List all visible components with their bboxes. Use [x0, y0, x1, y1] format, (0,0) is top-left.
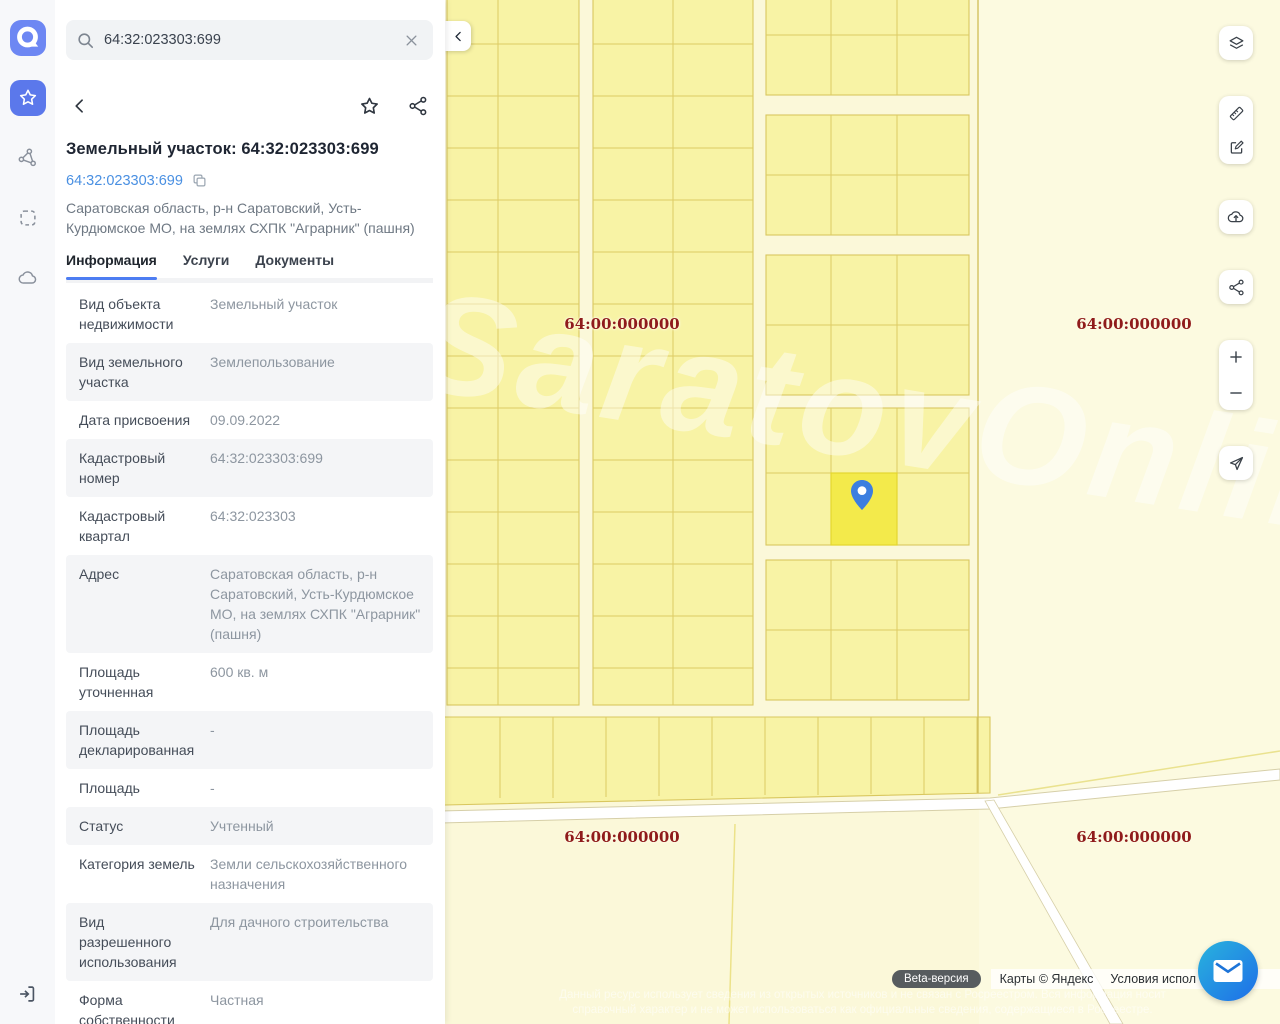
copy-icon: [191, 172, 208, 189]
beta-badge: Beta-версия: [892, 970, 981, 988]
tab-information[interactable]: Информация: [66, 252, 157, 278]
map-canvas[interactable]: SaratovOnline 64:00:00000064:00:00000064…: [445, 0, 1280, 1024]
row-label: Адрес: [79, 564, 210, 644]
cadastral-quarter-label: 64:00:000000: [564, 315, 679, 333]
envelope-icon: [1212, 957, 1244, 985]
row-value: Для дачного строительства: [210, 912, 423, 972]
row-label: Кадастровый номер: [79, 448, 210, 488]
info-table: Вид объекта недвижимости Земельный участ…: [66, 285, 433, 1024]
table-row: Адрес Саратовская область, р-н Саратовск…: [66, 555, 433, 653]
tab-documents[interactable]: Документы: [255, 252, 334, 278]
cadastral-quarter-label: 64:00:000000: [1076, 828, 1191, 846]
map-share-button[interactable]: [1219, 270, 1253, 304]
row-value: 600 кв. м: [210, 662, 423, 702]
row-label: Кадастровый квартал: [79, 506, 210, 546]
zoom-controls: [1219, 340, 1253, 410]
table-row: Кадастровый номер 64:32:023303:699: [66, 439, 433, 497]
cadastral-quarter-label: 64:00:000000: [564, 828, 679, 846]
row-label: Категория земель: [79, 854, 210, 894]
row-label: Вид объекта недвижимости: [79, 294, 210, 334]
table-row: Площадь -: [66, 769, 433, 807]
cadastral-quarter-label: 64:00:000000: [1076, 315, 1191, 333]
minus-icon: [1227, 384, 1245, 402]
share-icon: [1227, 278, 1246, 297]
panel-header: [66, 88, 433, 124]
row-label: Вид разрешенного использования: [79, 912, 210, 972]
polygon-nodes-icon: [17, 147, 39, 169]
tabs: Информация Услуги Документы: [66, 252, 433, 283]
close-icon: [404, 33, 419, 48]
table-row: Форма собственности Частная: [66, 981, 433, 1024]
row-value: Саратовская область, р-н Саратовский, Ус…: [210, 564, 423, 644]
chevron-left-icon: [452, 30, 465, 43]
cloud-icon: [17, 267, 39, 289]
upload-button[interactable]: [1219, 200, 1253, 234]
ruler-button[interactable]: [1219, 96, 1253, 130]
row-value: Учтенный: [210, 816, 423, 836]
sidebar-item-selection[interactable]: [10, 200, 46, 236]
layers-icon: [1227, 34, 1246, 53]
star-icon: [17, 87, 39, 109]
cadastral-parcels-layer: [445, 0, 1280, 1024]
edit-icon: [1227, 138, 1246, 157]
collapse-panel-button[interactable]: [445, 21, 471, 51]
row-label: Статус: [79, 816, 210, 836]
header-actions: [354, 91, 433, 122]
table-row: Дата присвоения 09.09.2022: [66, 401, 433, 439]
navigation-arrow-icon: [1227, 454, 1246, 473]
row-label: Дата присвоения: [79, 410, 210, 430]
zoom-in-button[interactable]: [1219, 340, 1253, 374]
page-title: Земельный участок: 64:32:023303:699: [66, 140, 433, 159]
row-value: 64:32:023303:699: [210, 448, 423, 488]
map-toolbar: [1219, 26, 1253, 480]
map: SaratovOnline 64:00:00000064:00:00000064…: [445, 0, 1280, 1024]
row-value: -: [210, 778, 423, 798]
row-label: Форма собственности: [79, 990, 210, 1024]
cadastral-number-link[interactable]: 64:32:023303:699: [66, 173, 183, 189]
row-label: Вид земельного участка: [79, 352, 210, 392]
share-icon: [407, 95, 429, 117]
table-row: Вид разрешенного использования Для дачно…: [66, 903, 433, 981]
search-input[interactable]: [104, 32, 402, 48]
details-panel: Земельный участок: 64:32:023303:699 64:3…: [55, 0, 445, 1024]
measure-edit-group: [1219, 96, 1253, 164]
locate-button[interactable]: [1219, 446, 1253, 480]
plus-icon: [1227, 348, 1245, 366]
row-value: Частная: [210, 990, 423, 1024]
ruler-icon: [1227, 104, 1246, 123]
app-logo-icon: [10, 20, 46, 56]
clear-search-button[interactable]: [402, 31, 421, 50]
table-row: Вид объекта недвижимости Земельный участ…: [66, 285, 433, 343]
favorite-button[interactable]: [354, 91, 385, 122]
row-value: Земли сельскохозяйственного назначения: [210, 854, 423, 894]
row-label: Площадь уточненная: [79, 662, 210, 702]
table-row: Кадастровый квартал 64:32:023303: [66, 497, 433, 555]
row-label: Площадь: [79, 778, 210, 798]
object-address: Саратовская область, р-н Саратовский, Ус…: [66, 198, 433, 238]
table-row: Площадь уточненная 600 кв. м: [66, 653, 433, 711]
table-row: Категория земель Земли сельскохозяйствен…: [66, 845, 433, 903]
row-label: Площадь декларированная: [79, 720, 210, 760]
cloud-upload-icon: [1226, 207, 1246, 227]
table-row: Площадь декларированная -: [66, 711, 433, 769]
layers-button[interactable]: [1219, 26, 1253, 60]
chat-button[interactable]: [1198, 941, 1258, 1001]
chevron-left-icon: [70, 96, 90, 116]
row-value: Земельный участок: [210, 294, 423, 334]
share-button[interactable]: [403, 91, 433, 122]
row-value: -: [210, 720, 423, 760]
search-icon: [76, 31, 95, 50]
copy-button[interactable]: [191, 172, 208, 189]
edit-button[interactable]: [1219, 130, 1253, 164]
zoom-out-button[interactable]: [1219, 376, 1253, 410]
table-row: Статус Учтенный: [66, 807, 433, 845]
row-value: 09.09.2022: [210, 410, 423, 430]
cadastral-number-row: 64:32:023303:699: [66, 172, 433, 189]
logout-button[interactable]: [9, 976, 45, 1012]
back-button[interactable]: [66, 92, 94, 120]
search-bar: [66, 20, 433, 60]
terms-link[interactable]: Условия испол: [1110, 972, 1196, 986]
logout-icon: [16, 983, 38, 1005]
row-value: Землепользование: [210, 352, 423, 392]
table-row: Вид земельного участка Землепользование: [66, 343, 433, 401]
star-icon: [358, 95, 381, 118]
sidebar-item-objects[interactable]: [10, 140, 46, 176]
dashed-select-icon: [17, 207, 39, 229]
cadastral-map-app: Земельный участок: 64:32:023303:699 64:3…: [0, 0, 1280, 1024]
yandex-copyright-link[interactable]: Карты © Яндекс: [1000, 972, 1094, 986]
sidebar: [0, 0, 55, 1024]
sidebar-item-favorites[interactable]: [10, 80, 46, 116]
row-value: 64:32:023303: [210, 506, 423, 546]
sidebar-item-cloud[interactable]: [10, 260, 46, 296]
app-logo[interactable]: [10, 20, 46, 56]
tab-services[interactable]: Услуги: [183, 252, 230, 278]
